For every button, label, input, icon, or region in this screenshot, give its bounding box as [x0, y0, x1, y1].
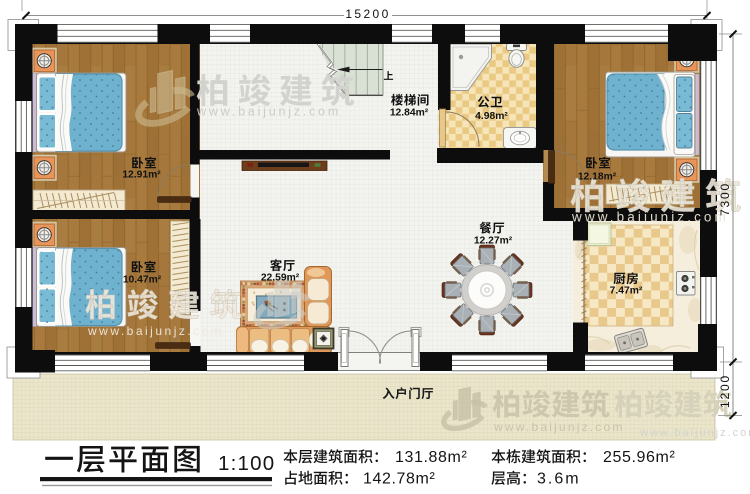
svg-text:3.6m: 3.6m: [537, 471, 581, 488]
svg-text:12.91m²: 12.91m²: [122, 170, 161, 181]
svg-text:www.baijunjz.com: www.baijunjz.com: [493, 420, 625, 434]
svg-text:12.84m²: 12.84m²: [390, 108, 429, 119]
svg-text:www.baijunjz.com: www.baijunjz.com: [639, 427, 750, 439]
svg-text:142.78m²: 142.78m²: [363, 471, 435, 488]
svg-text:22.59m²: 22.59m²: [261, 273, 300, 284]
svg-text:7.47m²: 7.47m²: [610, 286, 643, 297]
svg-text:131.88m²: 131.88m²: [395, 449, 467, 466]
svg-text:www.baijunjz.com: www.baijunjz.com: [571, 210, 729, 225]
svg-text:www.baijunjz.com: www.baijunjz.com: [87, 324, 223, 338]
svg-text:4.98m²: 4.98m²: [475, 111, 508, 122]
svg-text:10.47m²: 10.47m²: [123, 275, 162, 286]
svg-text:12.18m²: 12.18m²: [578, 172, 617, 183]
svg-text:255.96m²: 255.96m²: [603, 449, 675, 466]
svg-text:7300: 7300: [718, 182, 732, 216]
svg-text:1:100: 1:100: [218, 452, 275, 475]
svg-text:15200: 15200: [345, 7, 390, 21]
svg-text:1200: 1200: [718, 374, 732, 408]
svg-text:www.baijunjz.com: www.baijunjz.com: [196, 105, 341, 119]
svg-text:12.27m²: 12.27m²: [474, 236, 513, 247]
